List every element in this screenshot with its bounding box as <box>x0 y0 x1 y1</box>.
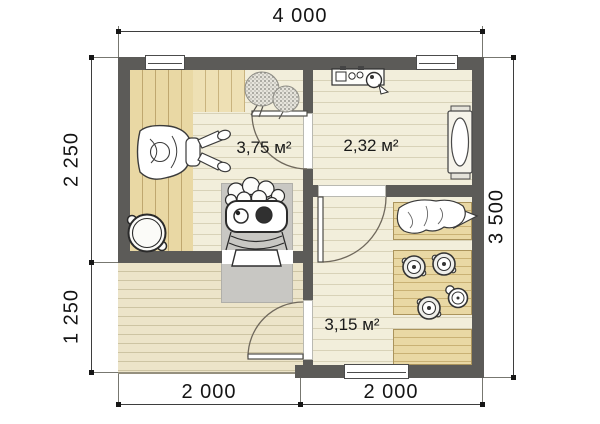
steam-bench-upper <box>193 70 245 112</box>
dim-line-right <box>513 57 514 378</box>
window-rest-room <box>416 55 458 70</box>
wash-room-area-label: 3,15 м² <box>324 315 379 335</box>
wash-bench-bottom <box>393 329 472 365</box>
dim-label-bottom-right: 2 000 <box>331 381 451 404</box>
wash-bench-top <box>393 202 472 240</box>
door-opening-wash-room <box>318 185 386 197</box>
door-opening-terrace <box>303 300 313 360</box>
dim-ext-left-1 <box>91 57 118 58</box>
dim-tick <box>89 260 94 265</box>
dim-ext-right-2 <box>484 377 514 378</box>
wall-steam-bottom-right <box>293 251 303 263</box>
dim-tick <box>89 370 94 375</box>
dim-tick <box>511 375 516 380</box>
steam-bench-left <box>130 70 193 251</box>
dim-label-bottom-left: 2 000 <box>149 381 269 404</box>
wall-mid-vertical-lower <box>303 360 313 378</box>
dim-label-left-upper: 2 250 <box>61 110 84 210</box>
dim-ext-left-2 <box>91 262 118 263</box>
rest-room-floor <box>313 70 472 185</box>
dim-label-right: 3 500 <box>486 157 509 277</box>
dim-line-top <box>118 31 482 32</box>
dim-label-top: 4 000 <box>240 5 360 28</box>
dim-ext-right-1 <box>484 57 514 58</box>
wall-divider-right <box>386 185 472 197</box>
dim-ext-left-3 <box>91 372 118 373</box>
wall-steam-bottom-left <box>118 251 222 263</box>
wall-left <box>118 70 130 263</box>
window-wash-room <box>344 364 409 379</box>
dim-tick <box>116 29 121 34</box>
dim-tick <box>89 55 94 60</box>
rest-room-area-label: 2,32 м² <box>343 136 398 156</box>
dim-label-left-lower: 1 250 <box>61 267 84 367</box>
wash-shelf-middle <box>393 250 472 315</box>
steam-room-area-label: 3,75 м² <box>236 138 291 158</box>
dim-tick <box>511 55 516 60</box>
wall-right <box>472 70 484 378</box>
stove-pad <box>221 183 293 303</box>
floor-plan-canvas: 4 000 2 250 1 250 3 500 2 000 2 000 <box>0 0 600 424</box>
dim-line-left <box>91 57 92 372</box>
window-steam-room <box>145 55 185 70</box>
dim-tick <box>480 402 485 407</box>
dim-tick <box>298 402 303 407</box>
wall-divider-left-stub <box>303 185 318 197</box>
dim-tick <box>116 402 121 407</box>
dim-tick <box>480 29 485 34</box>
door-opening-steam-room <box>303 113 313 169</box>
wall-mid-vertical-upper <box>303 70 313 113</box>
